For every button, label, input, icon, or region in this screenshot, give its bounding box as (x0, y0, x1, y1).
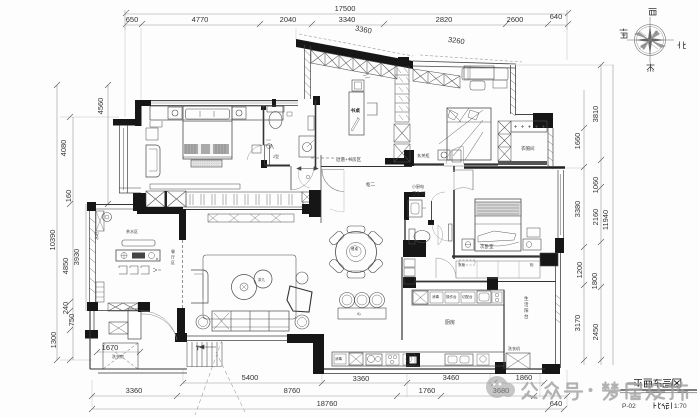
svg-text:8760: 8760 (284, 386, 301, 395)
svg-text:A): A) (357, 312, 361, 316)
svg-text:厨房: 厨房 (445, 319, 455, 326)
svg-text:2160: 2160 (591, 209, 600, 226)
svg-text:1300: 1300 (49, 332, 58, 349)
svg-text:1200: 1200 (575, 262, 584, 279)
svg-text:640: 640 (550, 12, 563, 21)
svg-text:茶几: 茶几 (258, 277, 266, 282)
svg-text:过道+书房区: 过道+书房区 (336, 156, 362, 163)
svg-text:台: 台 (524, 313, 529, 320)
svg-text:4770: 4770 (192, 15, 209, 24)
svg-text:3170: 3170 (573, 315, 582, 332)
svg-text:1760: 1760 (419, 386, 436, 395)
svg-text:柜: 柜 (530, 262, 534, 267)
svg-text:操作台: 操作台 (446, 294, 457, 299)
svg-text:640: 640 (550, 399, 563, 408)
svg-text:餐桌: 餐桌 (351, 246, 359, 251)
svg-text:玄关柜: 玄关柜 (417, 152, 430, 159)
svg-text:消毒: 消毒 (432, 294, 440, 299)
svg-text:1800: 1800 (590, 273, 599, 290)
svg-text:洗衣房: 洗衣房 (112, 353, 124, 359)
svg-text:3810: 3810 (591, 106, 600, 123)
svg-text:4560: 4560 (96, 98, 105, 115)
svg-text:3340: 3340 (339, 15, 356, 24)
svg-text:1860: 1860 (516, 373, 533, 382)
svg-text:枢二: 枢二 (366, 181, 375, 188)
svg-text:卫生间: 卫生间 (412, 190, 426, 197)
svg-text:1060: 1060 (591, 177, 600, 194)
svg-text:2820: 2820 (436, 15, 453, 24)
svg-text:3930: 3930 (72, 249, 81, 266)
svg-text:衣帽间: 衣帽间 (521, 145, 535, 152)
svg-text:厅: 厅 (171, 255, 175, 260)
svg-text:书桌: 书桌 (351, 107, 361, 114)
svg-text:1:70: 1:70 (674, 403, 687, 410)
svg-text:4080: 4080 (59, 140, 68, 157)
svg-text:阳: 阳 (524, 307, 529, 314)
svg-text:3460: 3460 (443, 373, 460, 382)
svg-text:10390: 10390 (48, 230, 57, 251)
svg-text:1660: 1660 (573, 133, 582, 150)
svg-text:切配台: 切配台 (462, 294, 473, 299)
svg-text:茶水区: 茶水区 (126, 228, 138, 234)
svg-text:650: 650 (126, 15, 139, 24)
svg-text:生: 生 (524, 295, 529, 301)
svg-text:5400: 5400 (242, 373, 259, 382)
svg-text:11940: 11940 (601, 210, 610, 230)
svg-text:2600: 2600 (507, 15, 524, 24)
svg-text:750: 750 (67, 314, 76, 327)
svg-text:区: 区 (171, 260, 175, 265)
svg-text:3360: 3360 (353, 374, 370, 383)
svg-text:3360: 3360 (126, 386, 143, 395)
svg-text:小厨电: 小厨电 (412, 183, 424, 189)
svg-text:洗衣机: 洗衣机 (508, 345, 520, 351)
svg-text:18760: 18760 (317, 399, 338, 408)
svg-text:活: 活 (524, 301, 529, 308)
svg-text:17500: 17500 (335, 4, 356, 13)
svg-text:餐: 餐 (171, 248, 175, 254)
svg-text:1670: 1670 (102, 343, 119, 352)
svg-text:消毒: 消毒 (335, 356, 343, 361)
svg-text:2型: 2型 (273, 154, 279, 159)
svg-text:4850: 4850 (61, 258, 70, 275)
svg-text:2040: 2040 (280, 15, 297, 24)
svg-text:水吧: 水吧 (93, 232, 99, 240)
svg-text:P-02: P-02 (622, 403, 636, 410)
svg-text:2450: 2450 (591, 324, 600, 341)
svg-text:240: 240 (61, 302, 70, 315)
svg-text:160: 160 (64, 190, 73, 203)
svg-text:3380: 3380 (573, 201, 582, 218)
svg-text:次卧室: 次卧室 (480, 243, 494, 250)
